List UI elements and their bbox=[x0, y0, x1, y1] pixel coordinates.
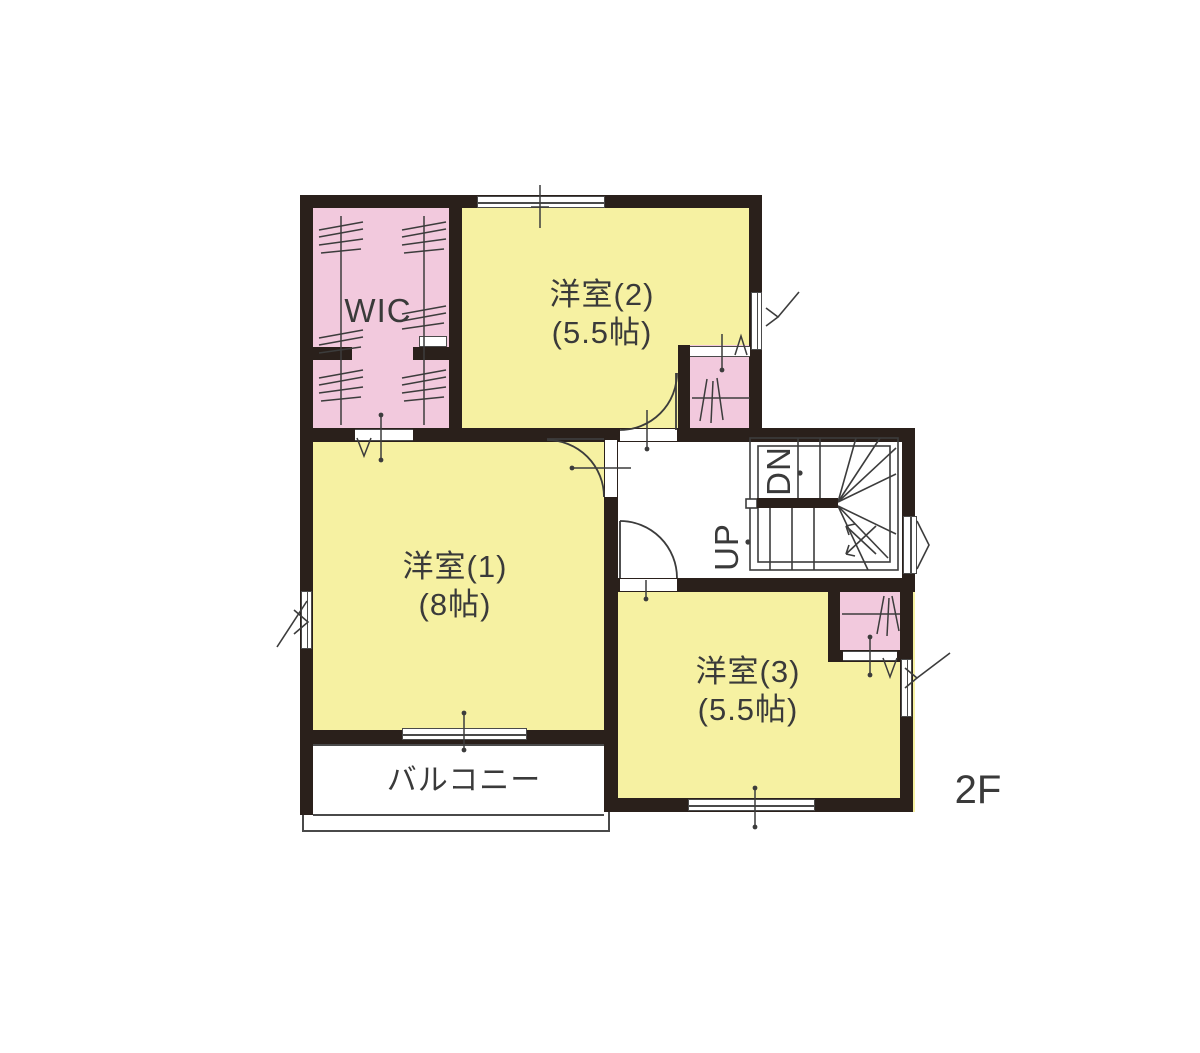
wic-label: WIC bbox=[318, 292, 438, 330]
room1-label: 洋室(1) (8帖) bbox=[325, 548, 585, 624]
wic-label-text: WIC bbox=[344, 292, 411, 329]
stairs-up-label: UP bbox=[712, 517, 742, 577]
closet2-interior bbox=[692, 378, 750, 423]
floor-plan-2f: WIC 洋室(2) (5.5帖) 洋室(1) (8帖) 洋室(3) (5.5帖)… bbox=[0, 0, 1200, 1053]
stairs-dn-label: DN bbox=[764, 441, 794, 501]
room2-door-arc bbox=[620, 373, 677, 430]
room3-size: (5.5帖) bbox=[618, 691, 878, 729]
hanger-icon bbox=[700, 378, 723, 423]
hanger-icon bbox=[319, 330, 363, 353]
room1-name: 洋室(1) bbox=[325, 548, 585, 586]
room3-label: 洋室(3) (5.5帖) bbox=[618, 653, 878, 729]
floor-label: 2F bbox=[938, 768, 1018, 813]
room3-door-arc bbox=[620, 521, 677, 578]
dn-text: DN bbox=[760, 446, 797, 496]
room2-size: (5.5帖) bbox=[472, 314, 732, 352]
floor-label-text: 2F bbox=[955, 768, 1002, 812]
balcony-label: バルコニー bbox=[334, 762, 594, 800]
balcony-label-text: バルコニー bbox=[387, 764, 541, 797]
room3-name: 洋室(3) bbox=[618, 653, 878, 691]
hanger-icon bbox=[877, 596, 899, 636]
room2-name: 洋室(2) bbox=[472, 276, 732, 314]
room1-size: (8帖) bbox=[325, 586, 585, 624]
symbols-layer bbox=[0, 0, 1200, 1053]
closet3-interior bbox=[842, 596, 900, 636]
up-text: UP bbox=[708, 523, 745, 571]
room2-label: 洋室(2) (5.5帖) bbox=[472, 276, 732, 352]
